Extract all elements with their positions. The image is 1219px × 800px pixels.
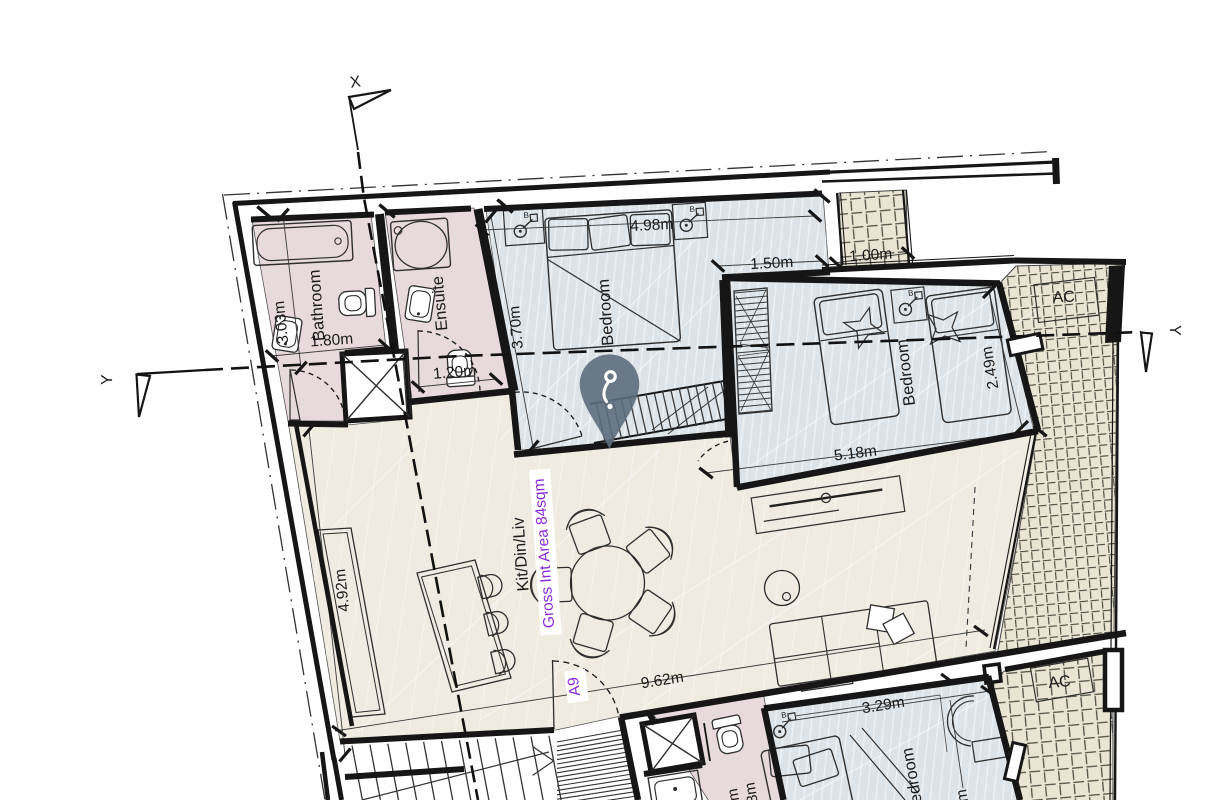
svg-text:B: B xyxy=(523,211,529,220)
svg-text:AC: AC xyxy=(1048,673,1072,692)
svg-text:Y: Y xyxy=(1166,325,1183,337)
svg-text:B: B xyxy=(689,205,695,214)
svg-text:1.00m: 1.00m xyxy=(849,246,893,266)
svg-text:4.98m: 4.98m xyxy=(630,216,674,235)
svg-text:AC: AC xyxy=(1052,289,1075,307)
svg-text:A9: A9 xyxy=(565,676,584,697)
svg-text:B: B xyxy=(908,288,914,298)
svg-text:1.80m: 1.80m xyxy=(310,331,354,351)
svg-text:1.50m: 1.50m xyxy=(750,254,794,273)
svg-text:Y: Y xyxy=(99,374,116,386)
